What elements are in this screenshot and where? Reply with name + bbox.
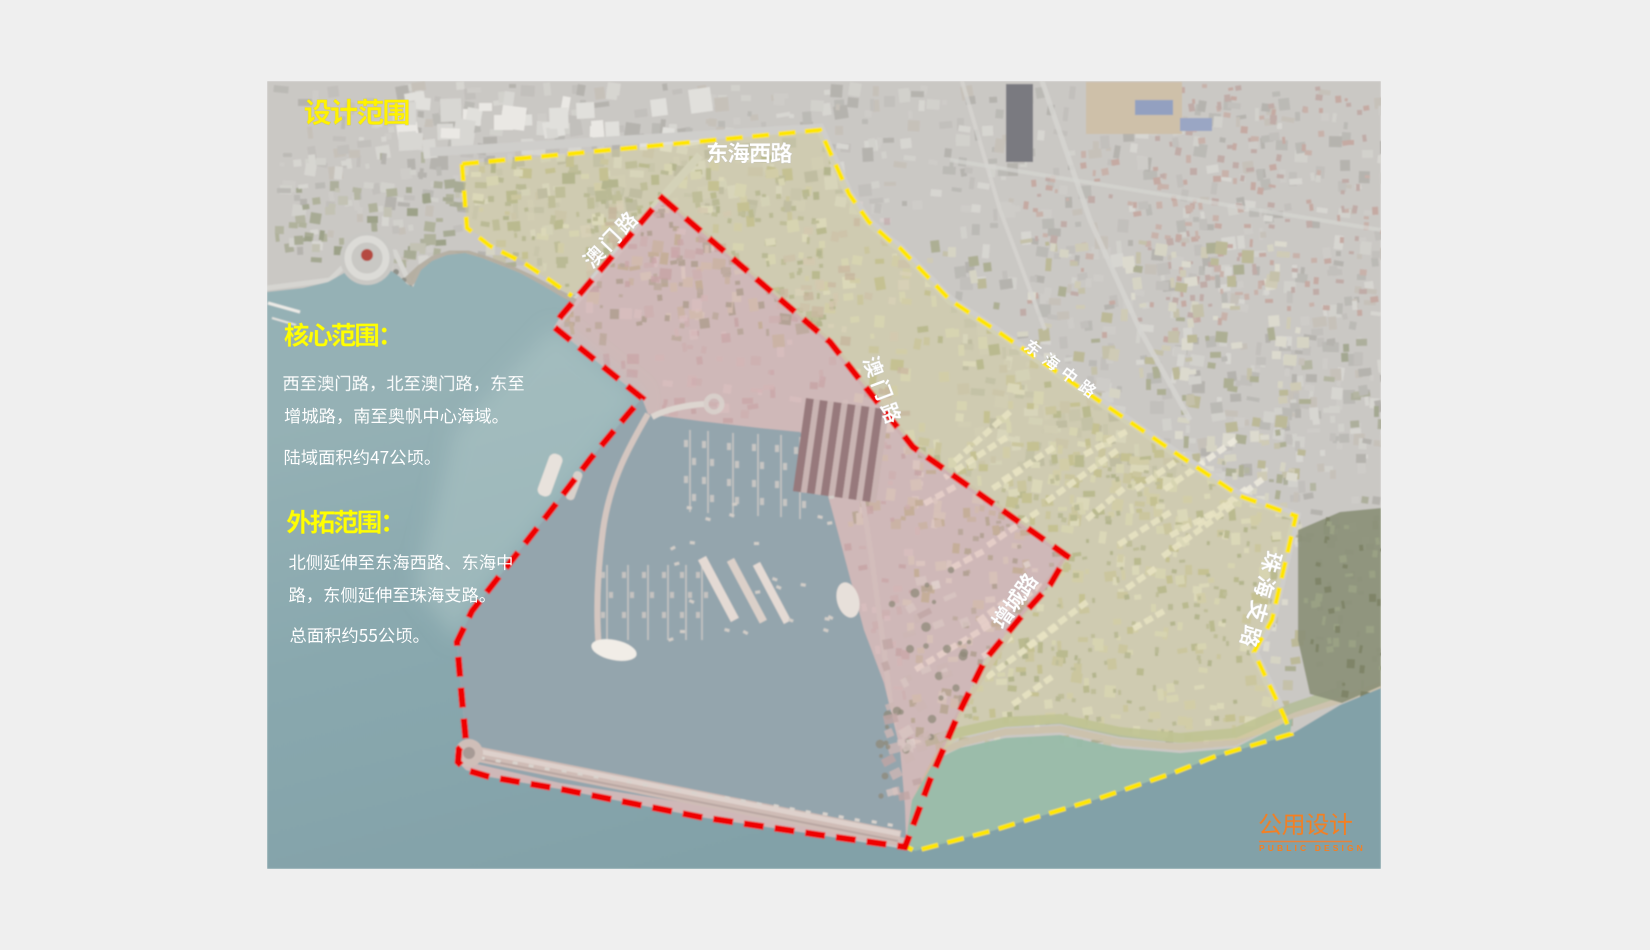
svg-text:PUBLIC DESIGN: PUBLIC DESIGN [1259,843,1366,853]
